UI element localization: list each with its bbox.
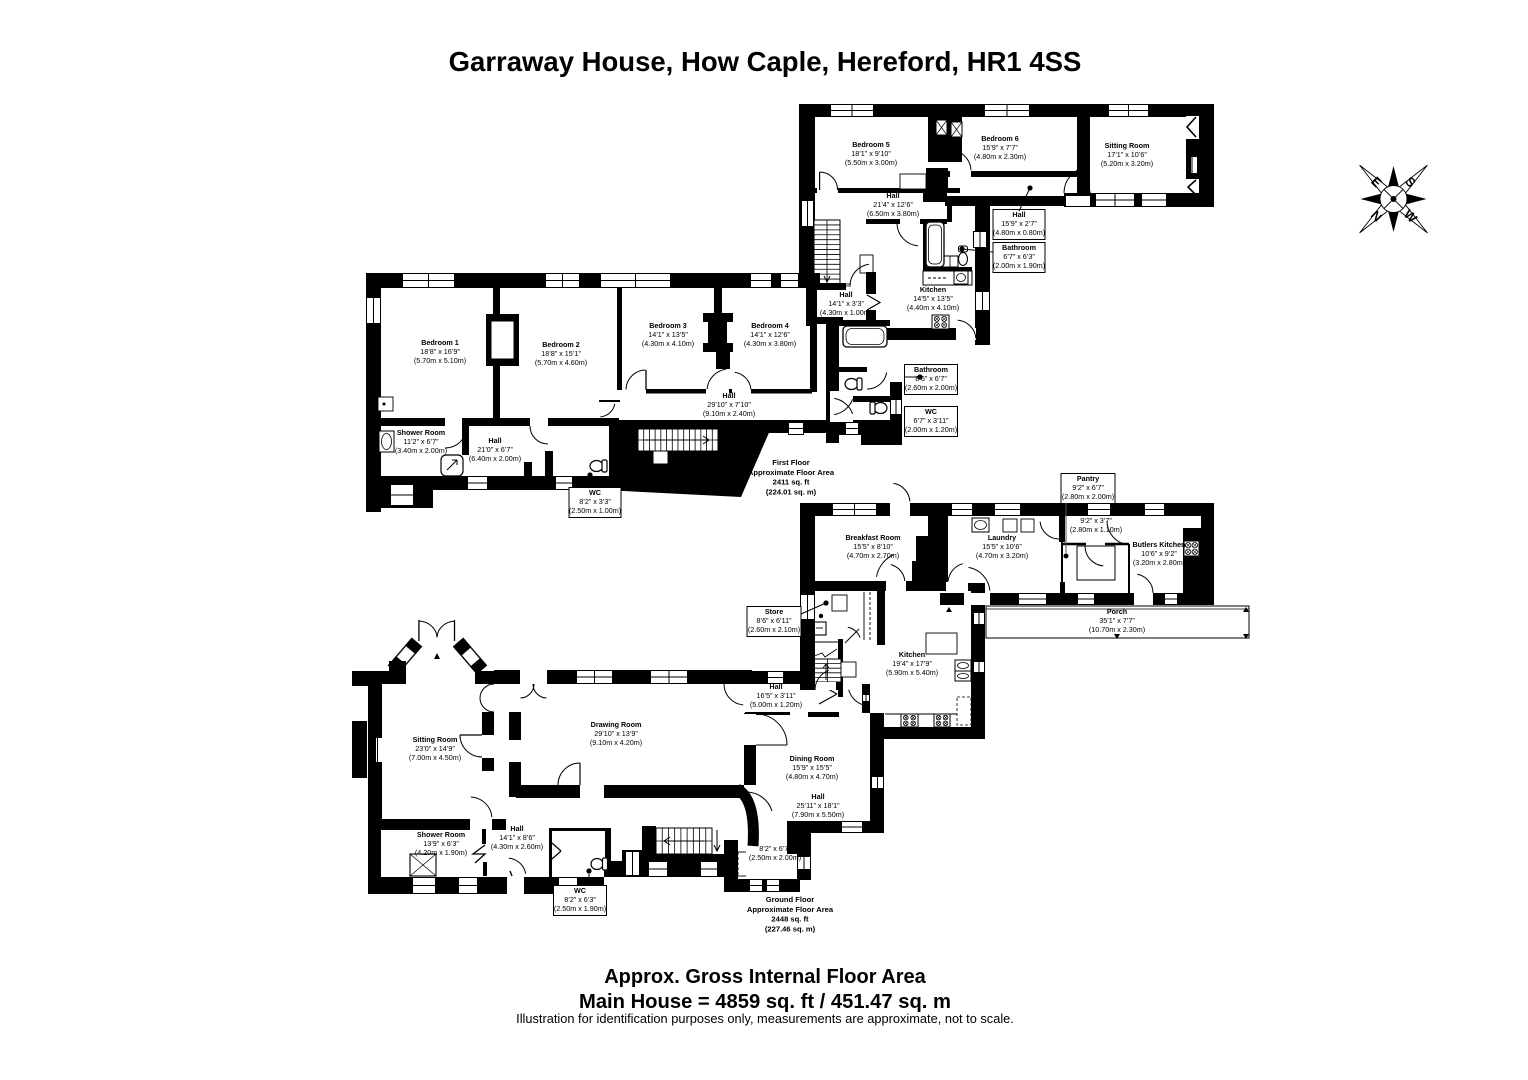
svg-text:Butlers Kitchen: Butlers Kitchen [1132,540,1185,549]
svg-text:(227.46 sq. m): (227.46 sq. m) [765,924,816,933]
svg-text:(7.90m x 5.50m): (7.90m x 5.50m) [792,810,844,819]
svg-text:9’2” x 6’7”: 9’2” x 6’7” [1072,483,1104,492]
svg-text:Shower Room: Shower Room [417,830,465,839]
svg-text:WC: WC [925,407,937,416]
svg-text:(2.60m x 2.00m): (2.60m x 2.00m) [905,383,957,392]
svg-text:Bedroom 5: Bedroom 5 [852,140,890,149]
svg-text:35’1” x 7’7”: 35’1” x 7’7” [1099,616,1135,625]
svg-text:Hall: Hall [811,792,824,801]
svg-text:(4.40m x 4.10m): (4.40m x 4.10m) [907,303,959,312]
svg-text:Hall: Hall [886,191,899,200]
svg-text:Drawing Room: Drawing Room [591,720,642,729]
svg-text:15’9” x 15’5”: 15’9” x 15’5” [792,763,832,772]
svg-text:17’1” x 10’6”: 17’1” x 10’6” [1107,150,1147,159]
svg-text:19’4” x 17’9”: 19’4” x 17’9” [892,659,932,668]
svg-text:Shower Room: Shower Room [397,428,445,437]
svg-text:(4.30m x 1.00m): (4.30m x 1.00m) [820,308,872,317]
svg-text:Sitting Room: Sitting Room [1105,141,1150,150]
svg-text:(5.50m x 3.00m): (5.50m x 3.00m) [845,158,897,167]
svg-text:(224.01 sq. m): (224.01 sq. m) [766,487,817,496]
svg-text:6’7” x 3’11”: 6’7” x 3’11” [913,416,949,425]
svg-text:8’2” x 3’3”: 8’2” x 3’3” [579,497,611,506]
svg-text:(4.70m x 2.70m): (4.70m x 2.70m) [847,551,899,560]
svg-text:2411 sq. ft: 2411 sq. ft [773,478,810,487]
svg-text:8’6” x 6’11”: 8’6” x 6’11” [756,616,792,625]
svg-text:21’4” x 12’6”: 21’4” x 12’6” [873,200,913,209]
svg-text:8’2” x 6’3”: 8’2” x 6’3” [564,895,596,904]
svg-text:11’2” x 6’7”: 11’2” x 6’7” [403,437,439,446]
svg-text:14’5” x 13’5”: 14’5” x 13’5” [913,294,953,303]
svg-text:(6.50m x 3.80m): (6.50m x 3.80m) [867,209,919,218]
svg-text:Illustration for identificatio: Illustration for identification purposes… [516,1011,1014,1026]
svg-text:Hall: Hall [722,391,735,400]
svg-text:(2.60m x 2.10m): (2.60m x 2.10m) [748,625,800,634]
svg-text:(7.00m x 4.50m): (7.00m x 4.50m) [409,753,461,762]
svg-text:First Floor: First Floor [772,458,810,467]
svg-text:Pantry: Pantry [1077,474,1099,483]
svg-text:Bathroom: Bathroom [1002,243,1036,252]
svg-text:Hall: Hall [488,436,501,445]
svg-text:WC: WC [589,488,601,497]
svg-text:10’6” x 9’2”: 10’6” x 9’2” [1141,549,1177,558]
svg-text:18’8” x 15’1”: 18’8” x 15’1” [541,349,581,358]
svg-text:Bedroom 2: Bedroom 2 [542,340,580,349]
svg-text:(5.70m x 4.60m): (5.70m x 4.60m) [535,358,587,367]
svg-text:Hall: Hall [510,824,523,833]
svg-text:18’1” x 9’10”: 18’1” x 9’10” [851,149,891,158]
svg-text:Main House = 4859 sq. ft / 451: Main House = 4859 sq. ft / 451.47 sq. m [579,991,951,1013]
svg-text:WC: WC [574,886,586,895]
svg-text:Bedroom 6: Bedroom 6 [981,134,1019,143]
svg-text:Bedroom 4: Bedroom 4 [751,321,789,330]
svg-text:(5.90m x 5.40m): (5.90m x 5.40m) [886,668,938,677]
svg-text:29’10” x 7’10”: 29’10” x 7’10” [707,400,751,409]
svg-text:Garraway House, How Caple, Her: Garraway House, How Caple, Hereford, HR1… [449,46,1082,77]
svg-text:(4.80m x 0.80m): (4.80m x 0.80m) [993,228,1045,237]
svg-text:6’7” x 6’3”: 6’7” x 6’3” [1003,252,1035,261]
svg-text:15’5” x 10’6”: 15’5” x 10’6” [982,542,1022,551]
svg-text:Bedroom 1: Bedroom 1 [421,338,459,347]
svg-text:Approx. Gross Internal Floor A: Approx. Gross Internal Floor Area [604,966,926,988]
svg-text:14’1” x 3’3”: 14’1” x 3’3” [828,299,864,308]
svg-text:(3.40m x 2.00m): (3.40m x 2.00m) [395,446,447,455]
svg-text:Kitchen: Kitchen [899,650,925,659]
svg-text:Hall: Hall [839,290,852,299]
svg-text:(4.20m x 1.90m): (4.20m x 1.90m) [415,848,467,857]
svg-text:2448 sq. ft: 2448 sq. ft [771,915,809,924]
svg-text:Bedroom 3: Bedroom 3 [649,321,687,330]
svg-text:8’2” x 6’7”: 8’2” x 6’7” [759,844,791,853]
svg-text:16’5” x 3’11”: 16’5” x 3’11” [756,691,796,700]
svg-text:(3.20m x 2.80m): (3.20m x 2.80m) [1133,558,1185,567]
svg-text:(5.00m x 1.20m): (5.00m x 1.20m) [750,700,802,709]
svg-text:(5.20m x 3.20m): (5.20m x 3.20m) [1101,159,1153,168]
svg-text:Porch: Porch [1107,607,1127,616]
svg-text:(2.50m x 2.00m): (2.50m x 2.00m) [749,853,801,862]
svg-text:Ground Floor: Ground Floor [766,895,815,904]
svg-text:(4.30m x 2.60m): (4.30m x 2.60m) [491,842,543,851]
svg-text:(9.10m x 2.40m): (9.10m x 2.40m) [703,409,755,418]
svg-text:(4.30m x 3.80m): (4.30m x 3.80m) [744,339,796,348]
svg-text:Breakfast Room: Breakfast Room [845,533,900,542]
svg-text:(5.70m x 5.10m): (5.70m x 5.10m) [414,356,466,365]
svg-text:(2.50m x 1.90m): (2.50m x 1.90m) [554,904,606,913]
svg-text:18’8” x 16’9”: 18’8” x 16’9” [420,347,460,356]
svg-text:Approximate Floor Area: Approximate Floor Area [747,905,834,914]
svg-text:(4.30m x 4.10m): (4.30m x 4.10m) [642,339,694,348]
svg-text:9’2” x 3’7”: 9’2” x 3’7” [1080,516,1112,525]
svg-text:13’9” x 6’3”: 13’9” x 6’3” [423,839,459,848]
svg-text:(2.00m x 1.90m): (2.00m x 1.90m) [993,261,1045,270]
svg-text:Dining Room: Dining Room [790,754,835,763]
svg-text:Laundry: Laundry [988,533,1016,542]
svg-text:15’9” x 2’7”: 15’9” x 2’7” [1001,219,1037,228]
svg-text:Store: Store [765,607,783,616]
svg-text:(2.50m x 1.00m): (2.50m x 1.00m) [569,506,621,515]
svg-text:14’1” x 12’6”: 14’1” x 12’6” [750,330,790,339]
svg-text:14’1” x 8’6”: 14’1” x 8’6” [499,833,535,842]
svg-text:25’11” x 18’1”: 25’11” x 18’1” [796,801,840,810]
svg-text:(2.00m x 1.20m): (2.00m x 1.20m) [905,425,957,434]
svg-text:Hall: Hall [1012,210,1025,219]
svg-text:Sitting Room: Sitting Room [413,735,458,744]
svg-text:(4.70m x 3.20m): (4.70m x 3.20m) [976,551,1028,560]
svg-text:15’5” x 8’10”: 15’5” x 8’10” [853,542,893,551]
svg-text:21’0” x 6’7”: 21’0” x 6’7” [477,445,513,454]
svg-text:Hall: Hall [769,682,782,691]
svg-text:(2.80m x 2.00m): (2.80m x 2.00m) [1062,492,1114,501]
svg-text:15’9” x 7’7”: 15’9” x 7’7” [982,143,1018,152]
svg-text:(2.80m x 1.10m): (2.80m x 1.10m) [1070,525,1122,534]
svg-text:29’10” x 13’9”: 29’10” x 13’9” [594,729,638,738]
svg-text:(9.10m x 4.20m): (9.10m x 4.20m) [590,738,642,747]
svg-text:(6.40m x 2.00m): (6.40m x 2.00m) [469,454,521,463]
svg-text:14’1” x 13’5”: 14’1” x 13’5” [648,330,688,339]
svg-text:(4.80m x 2.30m): (4.80m x 2.30m) [974,152,1026,161]
svg-text:Approximate Floor Area: Approximate Floor Area [748,468,835,477]
svg-text:(4.80m x 4.70m): (4.80m x 4.70m) [786,772,838,781]
svg-text:Bathroom: Bathroom [914,365,948,374]
svg-text:23’0” x 14’9”: 23’0” x 14’9” [415,744,455,753]
svg-text:(10.70m x 2.30m): (10.70m x 2.30m) [1089,625,1145,634]
svg-text:Kitchen: Kitchen [920,285,946,294]
